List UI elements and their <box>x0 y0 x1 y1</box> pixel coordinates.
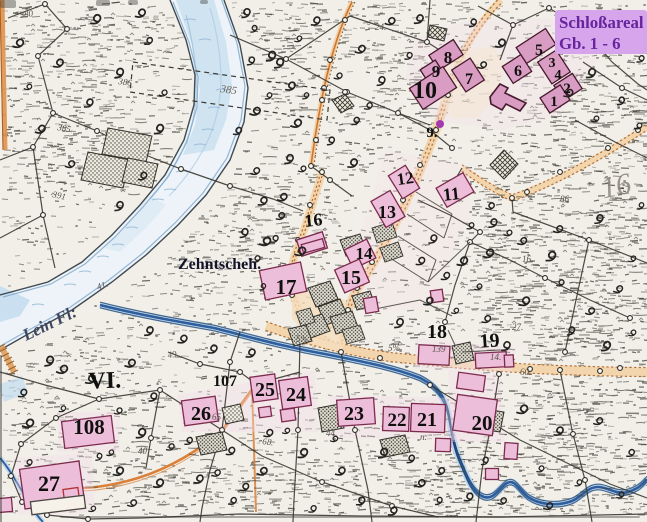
svg-text:26: 26 <box>191 403 211 425</box>
svg-text:139: 139 <box>432 344 446 354</box>
svg-text:65: 65 <box>212 412 222 422</box>
svg-text:24.: 24. <box>375 22 386 32</box>
svg-text:107: 107 <box>213 373 237 390</box>
svg-text:380: 380 <box>18 8 34 20</box>
svg-text:Zehntscheh.: Zehntscheh. <box>178 256 261 273</box>
svg-text:1: 1 <box>550 94 558 110</box>
svg-text:5%: 5% <box>296 334 308 344</box>
svg-text:15: 15 <box>341 267 361 289</box>
svg-text:14: 14 <box>356 244 374 263</box>
svg-text:5%: 5% <box>388 343 400 353</box>
svg-text:12: 12 <box>395 168 414 189</box>
svg-text:21: 21 <box>417 409 437 431</box>
svg-text:n.: n. <box>420 432 427 442</box>
svg-text:27: 27 <box>38 471 60 496</box>
svg-text:23: 23 <box>344 403 364 425</box>
svg-text:5: 5 <box>535 42 543 59</box>
svg-text:13: 13 <box>378 202 396 222</box>
svg-text:60.: 60. <box>520 367 531 377</box>
svg-text:19: 19 <box>479 329 500 352</box>
svg-text:22: 22 <box>388 410 407 431</box>
svg-text:20: 20 <box>472 411 493 435</box>
svg-text:Schloßareal: Schloßareal <box>559 13 644 32</box>
svg-text:11: 11 <box>442 183 461 205</box>
svg-text:VI.: VI. <box>88 367 122 394</box>
svg-text:8: 8 <box>444 48 453 67</box>
svg-text:385: 385 <box>219 83 238 97</box>
svg-text:4: 4 <box>555 68 562 83</box>
svg-text:86: 86 <box>560 194 570 204</box>
svg-text:16: 16 <box>303 209 323 231</box>
svg-text:14.: 14. <box>490 352 501 362</box>
svg-text:108: 108 <box>73 415 105 439</box>
svg-text:44.: 44. <box>326 428 337 438</box>
svg-text:7: 7 <box>465 71 473 88</box>
svg-text:10: 10 <box>413 78 437 104</box>
svg-text:386: 386 <box>117 76 133 88</box>
svg-text:40: 40 <box>138 446 148 456</box>
svg-text:9.: 9. <box>426 125 438 141</box>
svg-text:27.: 27. <box>512 322 523 332</box>
svg-text:17: 17 <box>276 275 297 299</box>
svg-text:6: 6 <box>514 63 522 80</box>
svg-text:Gb. 1 - 6: Gb. 1 - 6 <box>559 34 621 53</box>
svg-text:25: 25 <box>255 379 275 401</box>
svg-text:16.: 16. <box>522 254 533 264</box>
svg-text:24: 24 <box>286 384 306 406</box>
svg-text:2: 2 <box>563 81 571 97</box>
svg-text:49.: 49. <box>167 349 180 360</box>
svg-text:68.: 68. <box>262 436 275 447</box>
svg-text:18: 18 <box>427 321 447 343</box>
